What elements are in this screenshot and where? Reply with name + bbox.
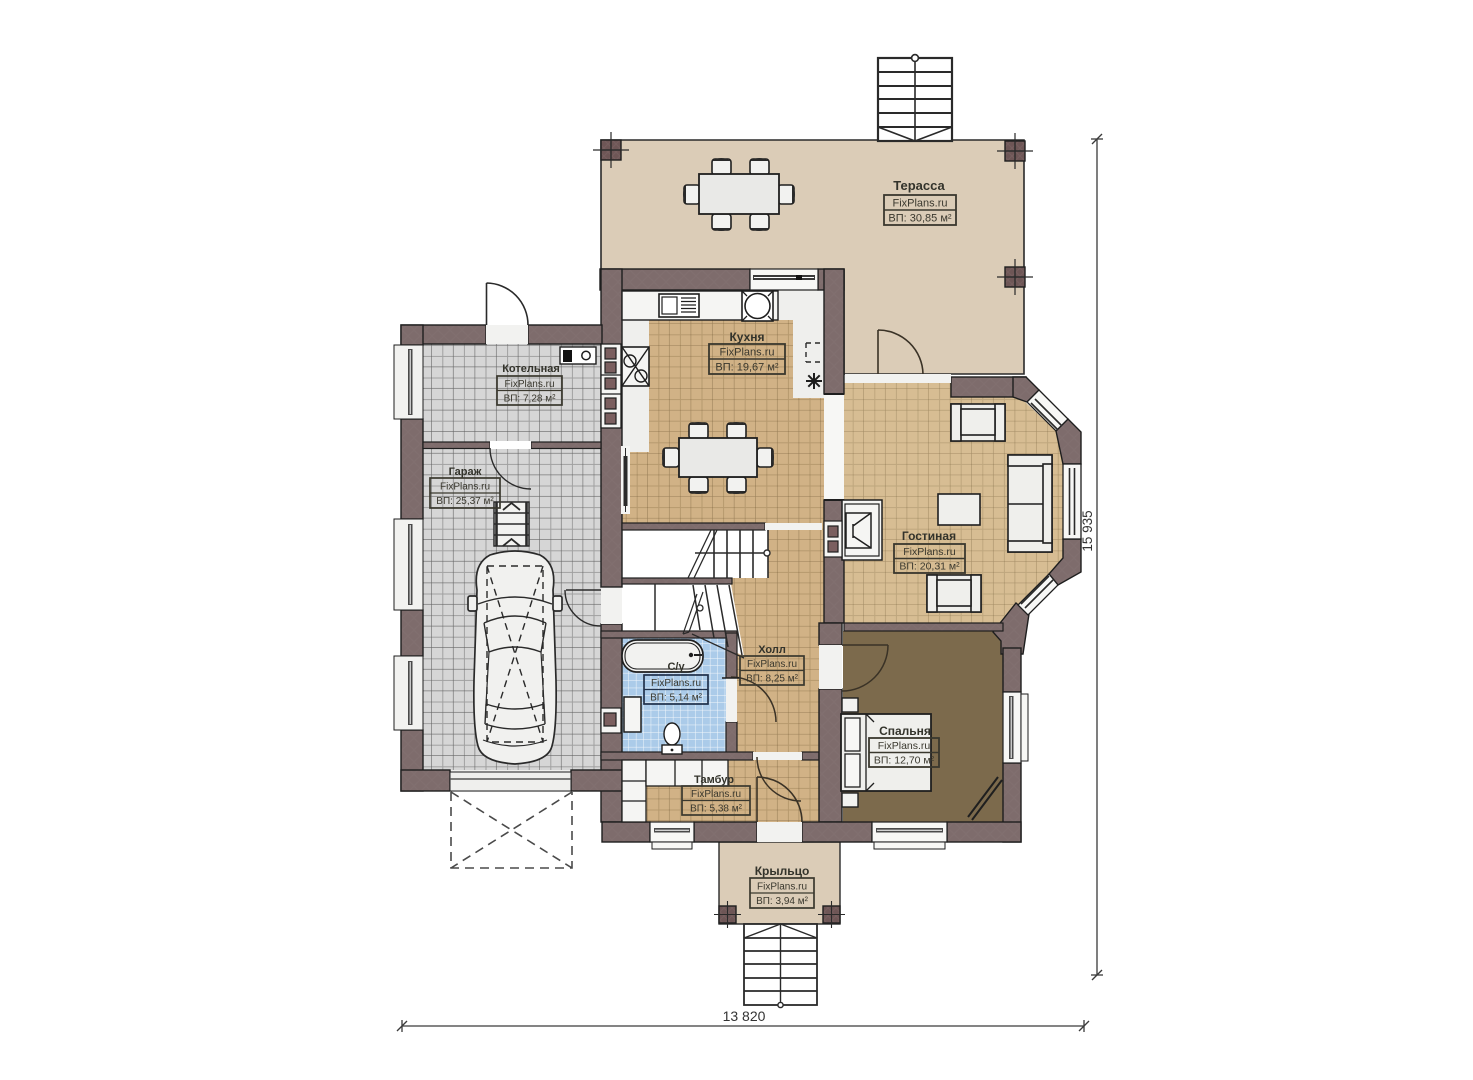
svg-text:ВП: 25,37 м²: ВП: 25,37 м² (436, 496, 494, 507)
svg-text:ВП: 7,28 м²: ВП: 7,28 м² (504, 394, 557, 405)
svg-text:ВП: 19,67 м²: ВП: 19,67 м² (715, 362, 779, 374)
svg-text:FixPlans.ru: FixPlans.ru (440, 482, 490, 493)
svg-text:Тамбур: Тамбур (694, 774, 734, 786)
svg-text:15 935: 15 935 (1080, 510, 1095, 551)
svg-text:FixPlans.ru: FixPlans.ru (747, 659, 797, 670)
svg-text:Гараж: Гараж (449, 466, 482, 478)
svg-text:ВП: 5,14 м²: ВП: 5,14 м² (650, 693, 703, 704)
svg-text:13 820: 13 820 (723, 1008, 766, 1024)
svg-text:FixPlans.ru: FixPlans.ru (691, 789, 741, 800)
svg-text:Котельная: Котельная (502, 363, 560, 375)
svg-text:ВП: 8,25 м²: ВП: 8,25 м² (746, 674, 799, 685)
svg-text:Холл: Холл (758, 644, 786, 656)
svg-text:С/у: С/у (667, 661, 685, 673)
svg-text:ВП: 12,70 м²: ВП: 12,70 м² (874, 755, 935, 767)
svg-text:Спальня: Спальня (879, 724, 931, 738)
svg-text:Крыльцо: Крыльцо (755, 864, 810, 878)
svg-text:FixPlans.ru: FixPlans.ru (878, 740, 931, 752)
svg-text:Гостиная: Гостиная (902, 529, 956, 543)
svg-text:FixPlans.ru: FixPlans.ru (903, 546, 956, 558)
svg-text:ВП: 3,94 м²: ВП: 3,94 м² (756, 896, 809, 907)
svg-text:ВП: 5,38 м²: ВП: 5,38 м² (690, 804, 743, 815)
svg-text:Кухня: Кухня (729, 330, 764, 344)
svg-text:FixPlans.ru: FixPlans.ru (504, 379, 554, 390)
svg-text:ВП: 20,31 м²: ВП: 20,31 м² (899, 561, 960, 573)
svg-text:FixPlans.ru: FixPlans.ru (651, 678, 701, 689)
svg-text:FixPlans.ru: FixPlans.ru (719, 347, 774, 359)
svg-text:FixPlans.ru: FixPlans.ru (757, 882, 807, 893)
svg-text:Терасса: Терасса (893, 178, 945, 193)
svg-text:ВП: 30,85 м²: ВП: 30,85 м² (888, 213, 952, 225)
svg-text:FixPlans.ru: FixPlans.ru (892, 198, 947, 210)
